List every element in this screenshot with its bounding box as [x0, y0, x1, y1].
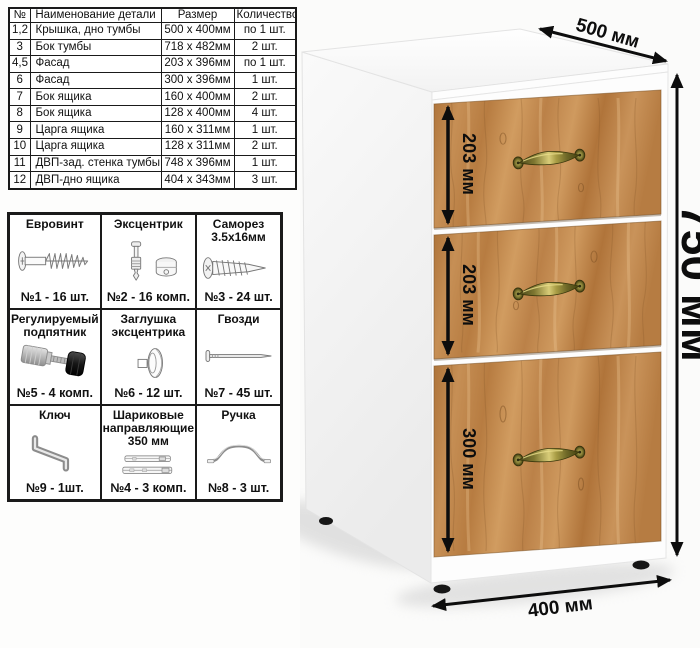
nail-icon [199, 326, 279, 386]
cam-lock-icon [108, 231, 188, 291]
col-header-name: Наименование детали [30, 8, 161, 23]
col-header-qty: Количество [234, 8, 296, 23]
table-row: 1,2Крышка, дно тумбы500 х 400ммпо 1 шт. [9, 23, 296, 40]
hardware-cell-euro-screw: Евровинт №1 - 16 шт. [9, 214, 101, 309]
euro-screw-icon [15, 231, 95, 291]
table-row: 6Фасад300 х 396мм1 шт. [9, 72, 296, 89]
dim-drawer-3: 300 мм [459, 428, 479, 490]
hardware-cell-cam-lock: Эксцентрик №2 - 16 комп. [101, 214, 196, 309]
parts-table: № Наименование детали Размер Количество … [8, 7, 297, 190]
table-header-row: № Наименование детали Размер Количество [9, 8, 296, 23]
cabinet-left-side-panel [302, 52, 432, 583]
dim-height: 750 мм [672, 204, 700, 362]
dim-drawer-1: 203 мм [459, 133, 479, 195]
col-header-size: Размер [161, 8, 234, 23]
table-row: 4,5Фасад203 х 396ммпо 1 шт. [9, 56, 296, 73]
cabinet-photo: 500 мм 750 мм 203 мм 203 мм 300 мм 400 м… [300, 0, 700, 648]
hardware-cell-handle: Ручка №8 - 3 шт. [196, 405, 281, 500]
dim-drawer-2: 203 мм [459, 264, 479, 326]
hardware-cell-hex-key: Ключ №9 - 1шт. [9, 405, 101, 500]
cam-cap-icon [108, 339, 188, 386]
adjustable-foot-icon [15, 339, 95, 386]
table-row: 8Бок ящика128 х 400мм4 шт. [9, 105, 296, 122]
hardware-cell-nails: Гвозди №7 - 45 шт. [196, 309, 281, 404]
table-row: 11ДВП-зад. стенка тумбы748 х 396мм1 шт. [9, 155, 296, 172]
hardware-cell-self-tapping-screw: Саморез 3.5х16мм №3 - 24 шт. [196, 214, 281, 309]
table-row: 9Царга ящика160 х 311мм1 шт. [9, 122, 296, 139]
col-header-num: № [9, 8, 30, 23]
hardware-cell-adjustable-foot: Регулируемый подпятник [9, 309, 101, 404]
drawer-handle-icon [199, 422, 279, 482]
table-row: 3Бок тумбы718 х 482мм2 шт. [9, 39, 296, 56]
table-row: 7Бок ящика160 х 400мм2 шт. [9, 89, 296, 106]
drawer-slides-icon [108, 448, 188, 482]
hardware-grid: Евровинт №1 - 16 шт. Эксцентрик [7, 212, 283, 502]
hex-key-icon [15, 422, 95, 482]
hardware-cell-cam-cap: Заглушка эксцентрика №6 - 12 шт. [101, 309, 196, 404]
table-row: 12ДВП-дно ящика404 х 343мм3 шт. [9, 172, 296, 189]
hardware-cell-drawer-slides: Шариковые направляющие 350 мм №4 - 3 ком… [101, 405, 196, 500]
self-tapping-screw-icon [199, 244, 279, 291]
table-row: 10Царга ящика128 х 311мм2 шт. [9, 139, 296, 156]
